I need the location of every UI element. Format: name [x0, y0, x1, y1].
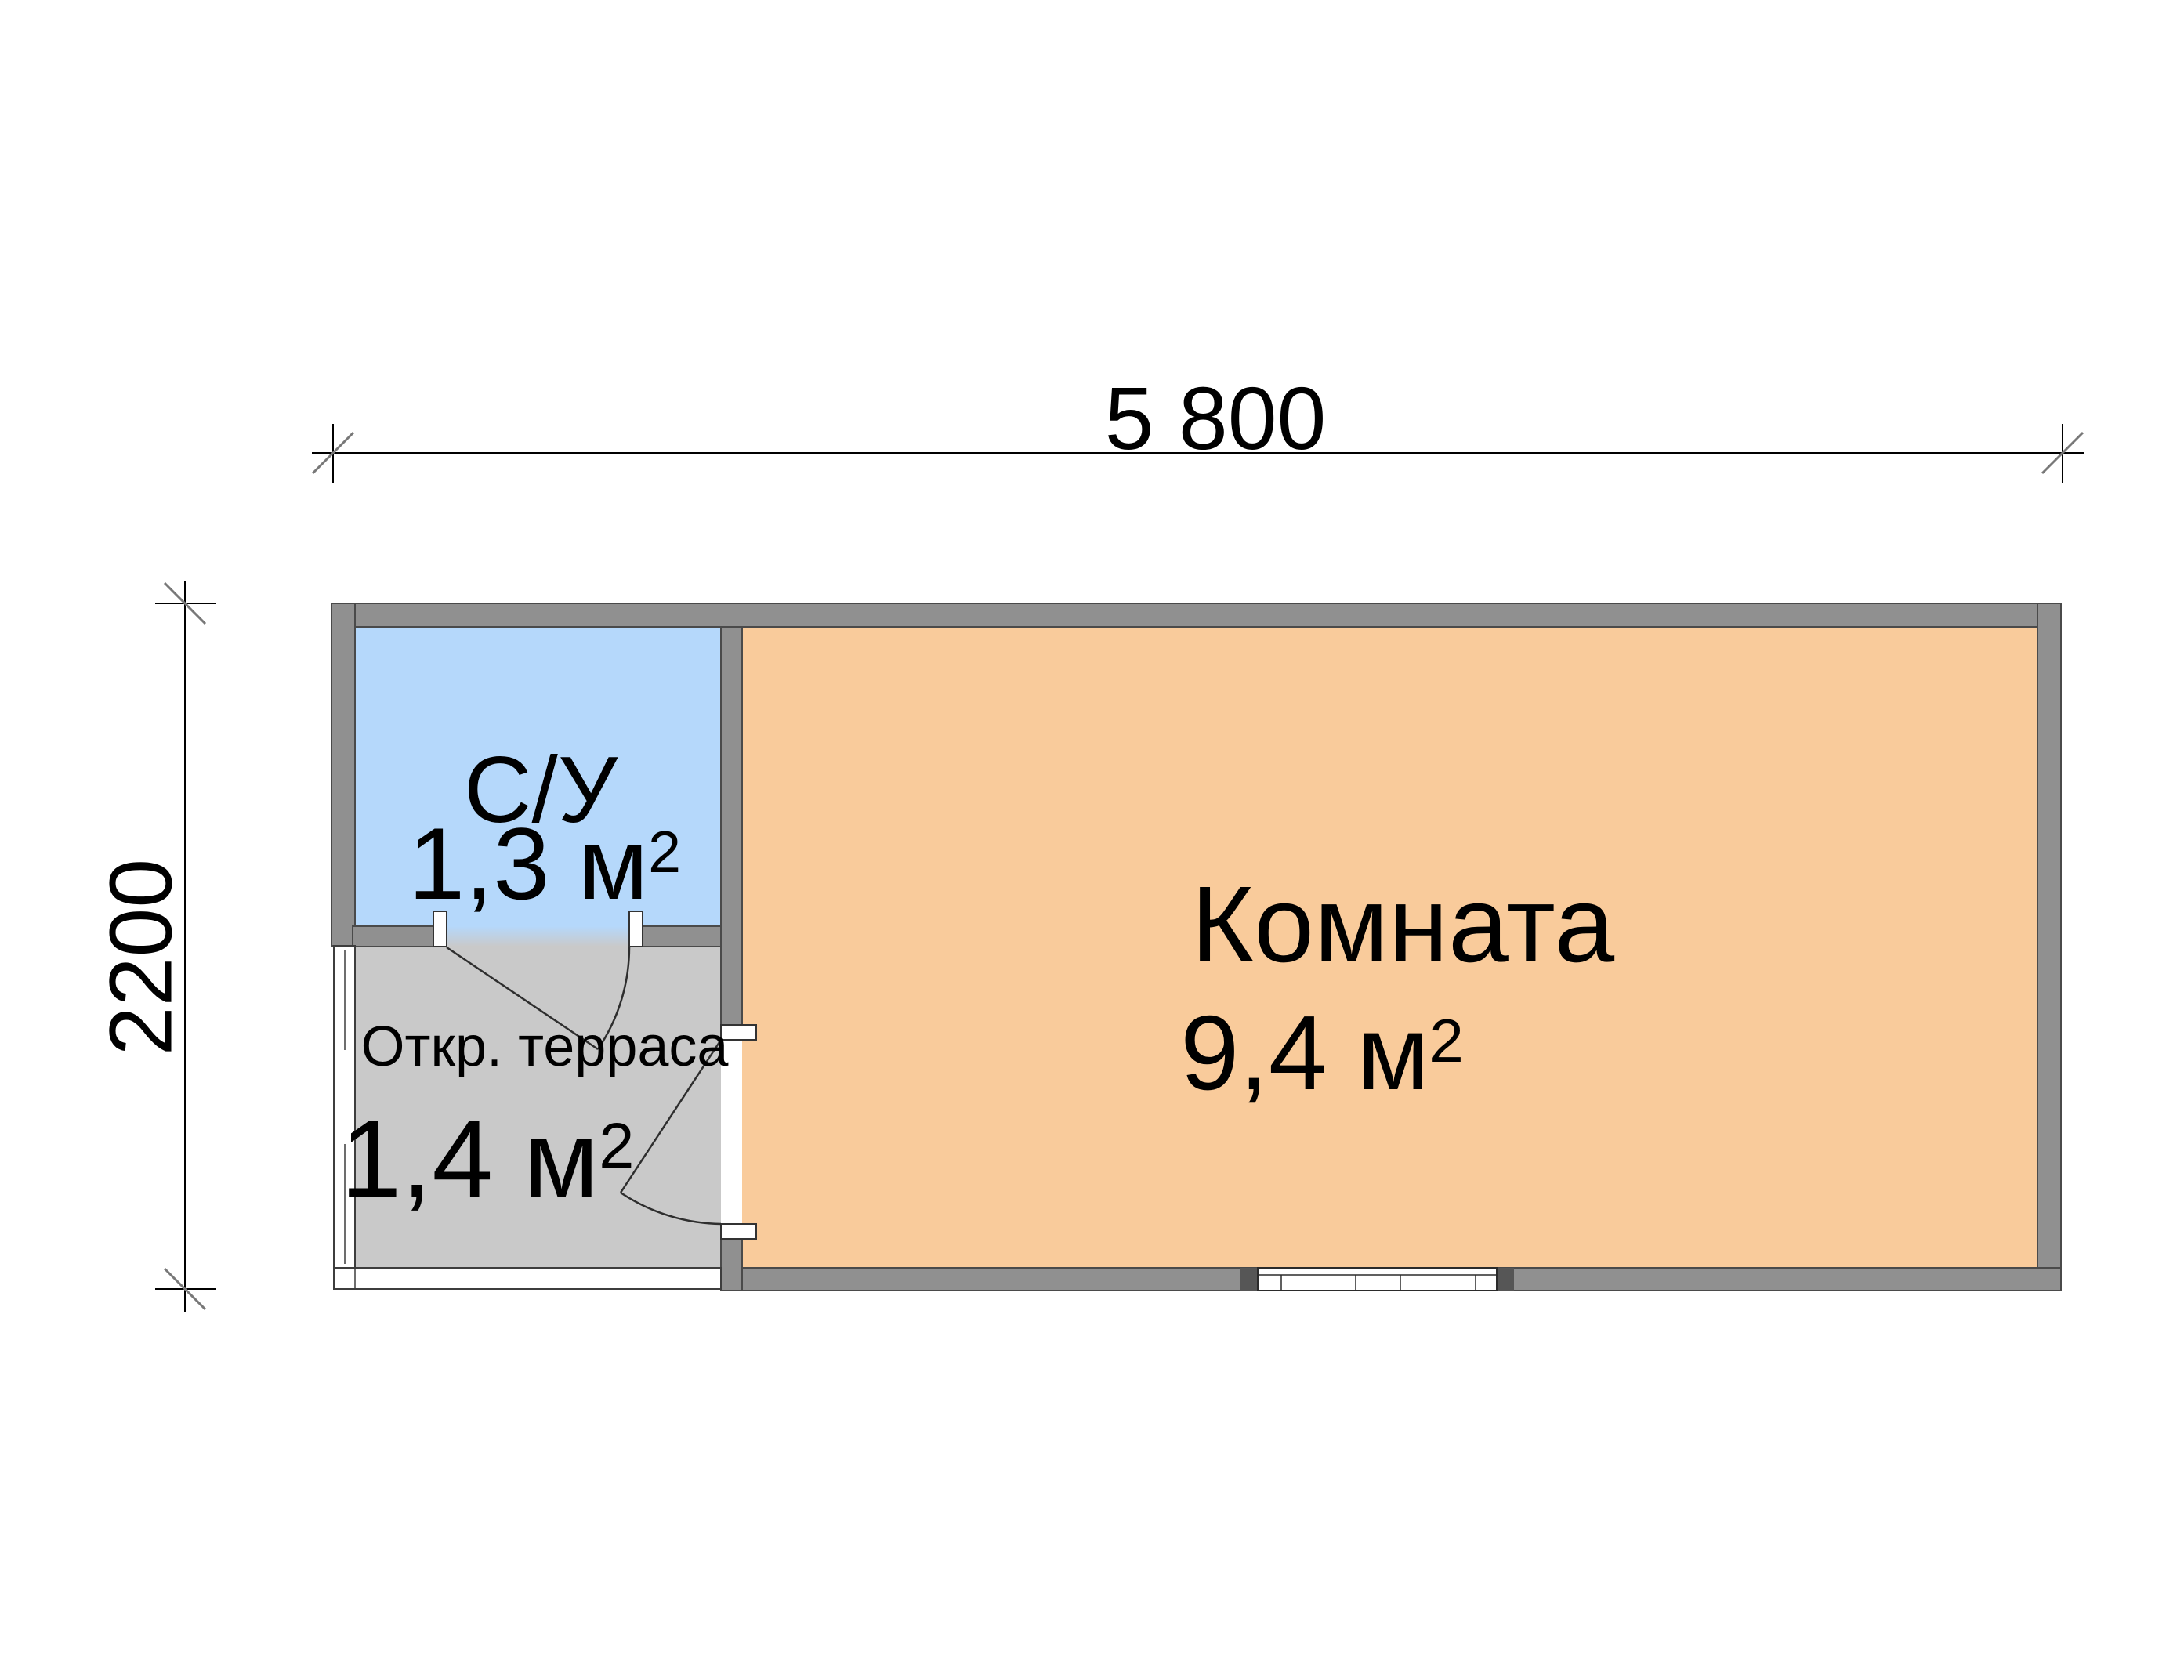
wall-top	[331, 603, 2061, 627]
main-room-area-value: 9,4 м	[1180, 994, 1429, 1112]
window-group	[1240, 1268, 1514, 1291]
floor-plan-page: 5 800 2200 С/У 1,3 м2 Откр. терраса 1,4 …	[0, 0, 2184, 1680]
main-room-name-label: Комната	[1089, 871, 1716, 979]
wall-right	[2037, 603, 2061, 1291]
window-end-left	[1240, 1268, 1258, 1291]
wall-bathroom-bottom-left	[353, 926, 433, 947]
window-frame	[1258, 1268, 1497, 1291]
dimension-height-label: 2200	[97, 762, 186, 1153]
window-end-right	[1497, 1268, 1514, 1291]
main-room-area-label: 9,4 м2	[1087, 1000, 1557, 1106]
bathroom-door-threshold	[447, 926, 629, 947]
bathroom-area-sup: 2	[648, 819, 681, 885]
terrace-area-sup: 2	[599, 1111, 634, 1182]
main-room-area-sup: 2	[1429, 1006, 1464, 1075]
dimension-width-label: 5 800	[902, 375, 1529, 463]
terrace-name-label: Откр. терраса	[270, 1019, 819, 1075]
terrace-area-value: 1,4 м	[341, 1097, 599, 1220]
terrace-area-label: 1,4 м2	[252, 1104, 723, 1214]
bathroom-area-label: 1,3 м2	[310, 813, 780, 914]
room-door-jamb-bottom	[721, 1224, 756, 1239]
bathroom-area-value: 1,3 м	[408, 806, 648, 921]
terrace-open-edge-bottom	[334, 1268, 721, 1289]
